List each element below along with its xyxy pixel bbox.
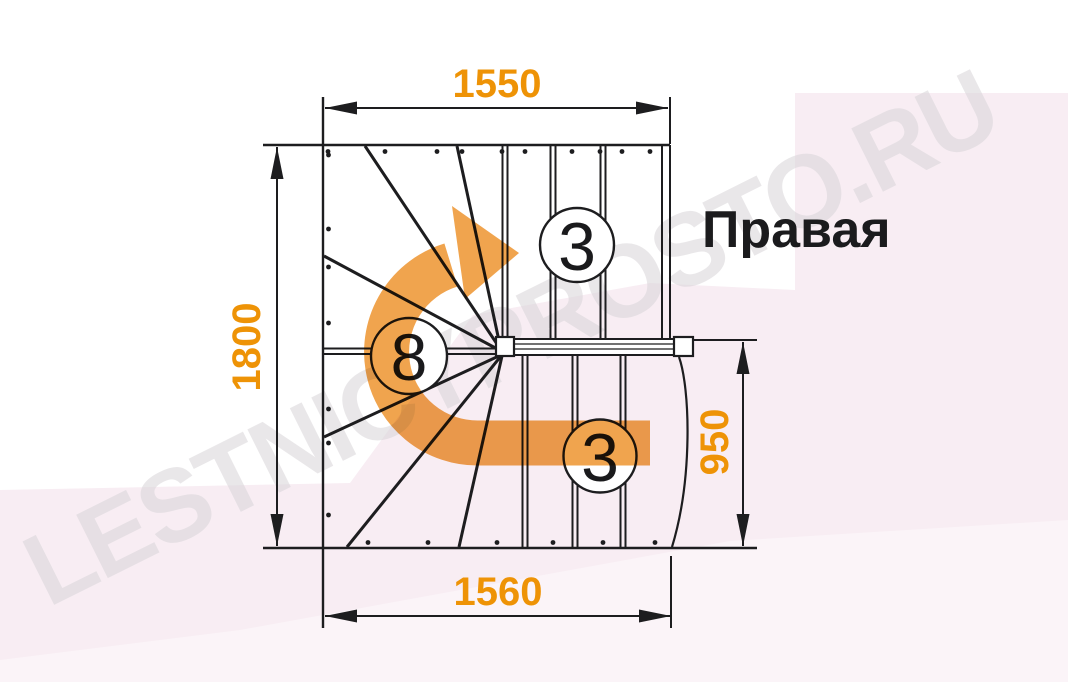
beam-left-cap [496,337,514,356]
dimension-bottom-value: 1560 [454,570,543,614]
dimension-left-value: 1800 [225,303,269,392]
staircase-plan-page: LESTNICYPROSTO.RU LESTNICYPROSTO.RU [0,0,1068,682]
upper-count-label: 3 [558,209,596,285]
staircase-plan-diagram: LESTNICYPROSTO.RU LESTNICYPROSTO.RU [0,0,1068,682]
beam-right-cap [674,337,693,356]
plan-title: Правая [702,201,891,259]
dimension-right-value: 950 [693,409,737,476]
beam-body [514,339,675,355]
landing-beam [496,337,693,356]
dimension-top-value: 1550 [453,62,542,106]
